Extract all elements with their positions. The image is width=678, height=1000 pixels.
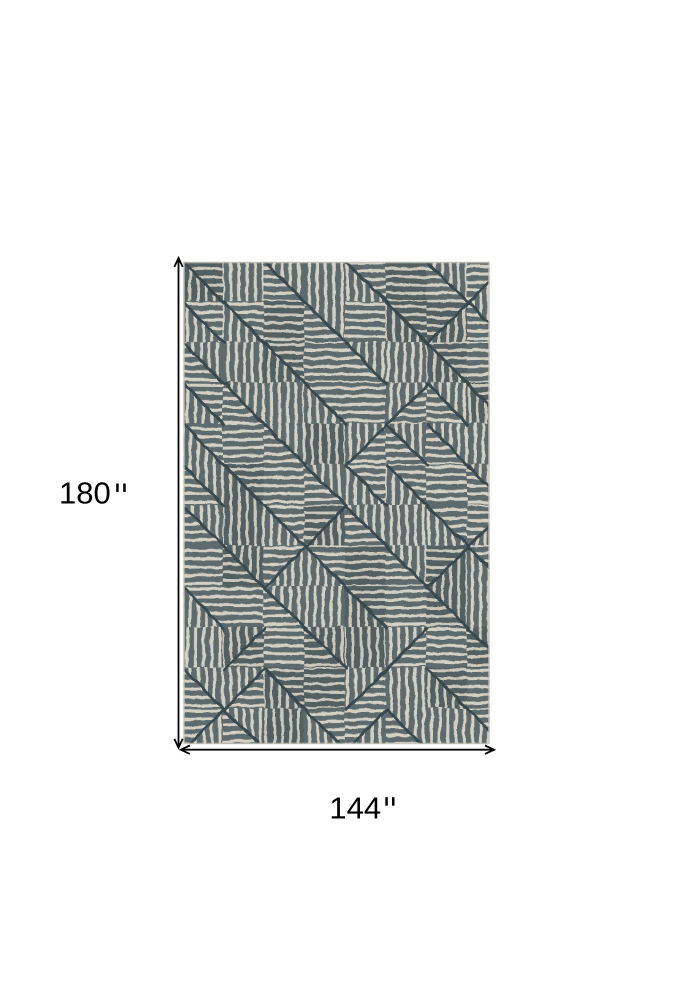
svg-text:144: 144 <box>329 791 381 826</box>
svg-text:180: 180 <box>59 475 111 510</box>
